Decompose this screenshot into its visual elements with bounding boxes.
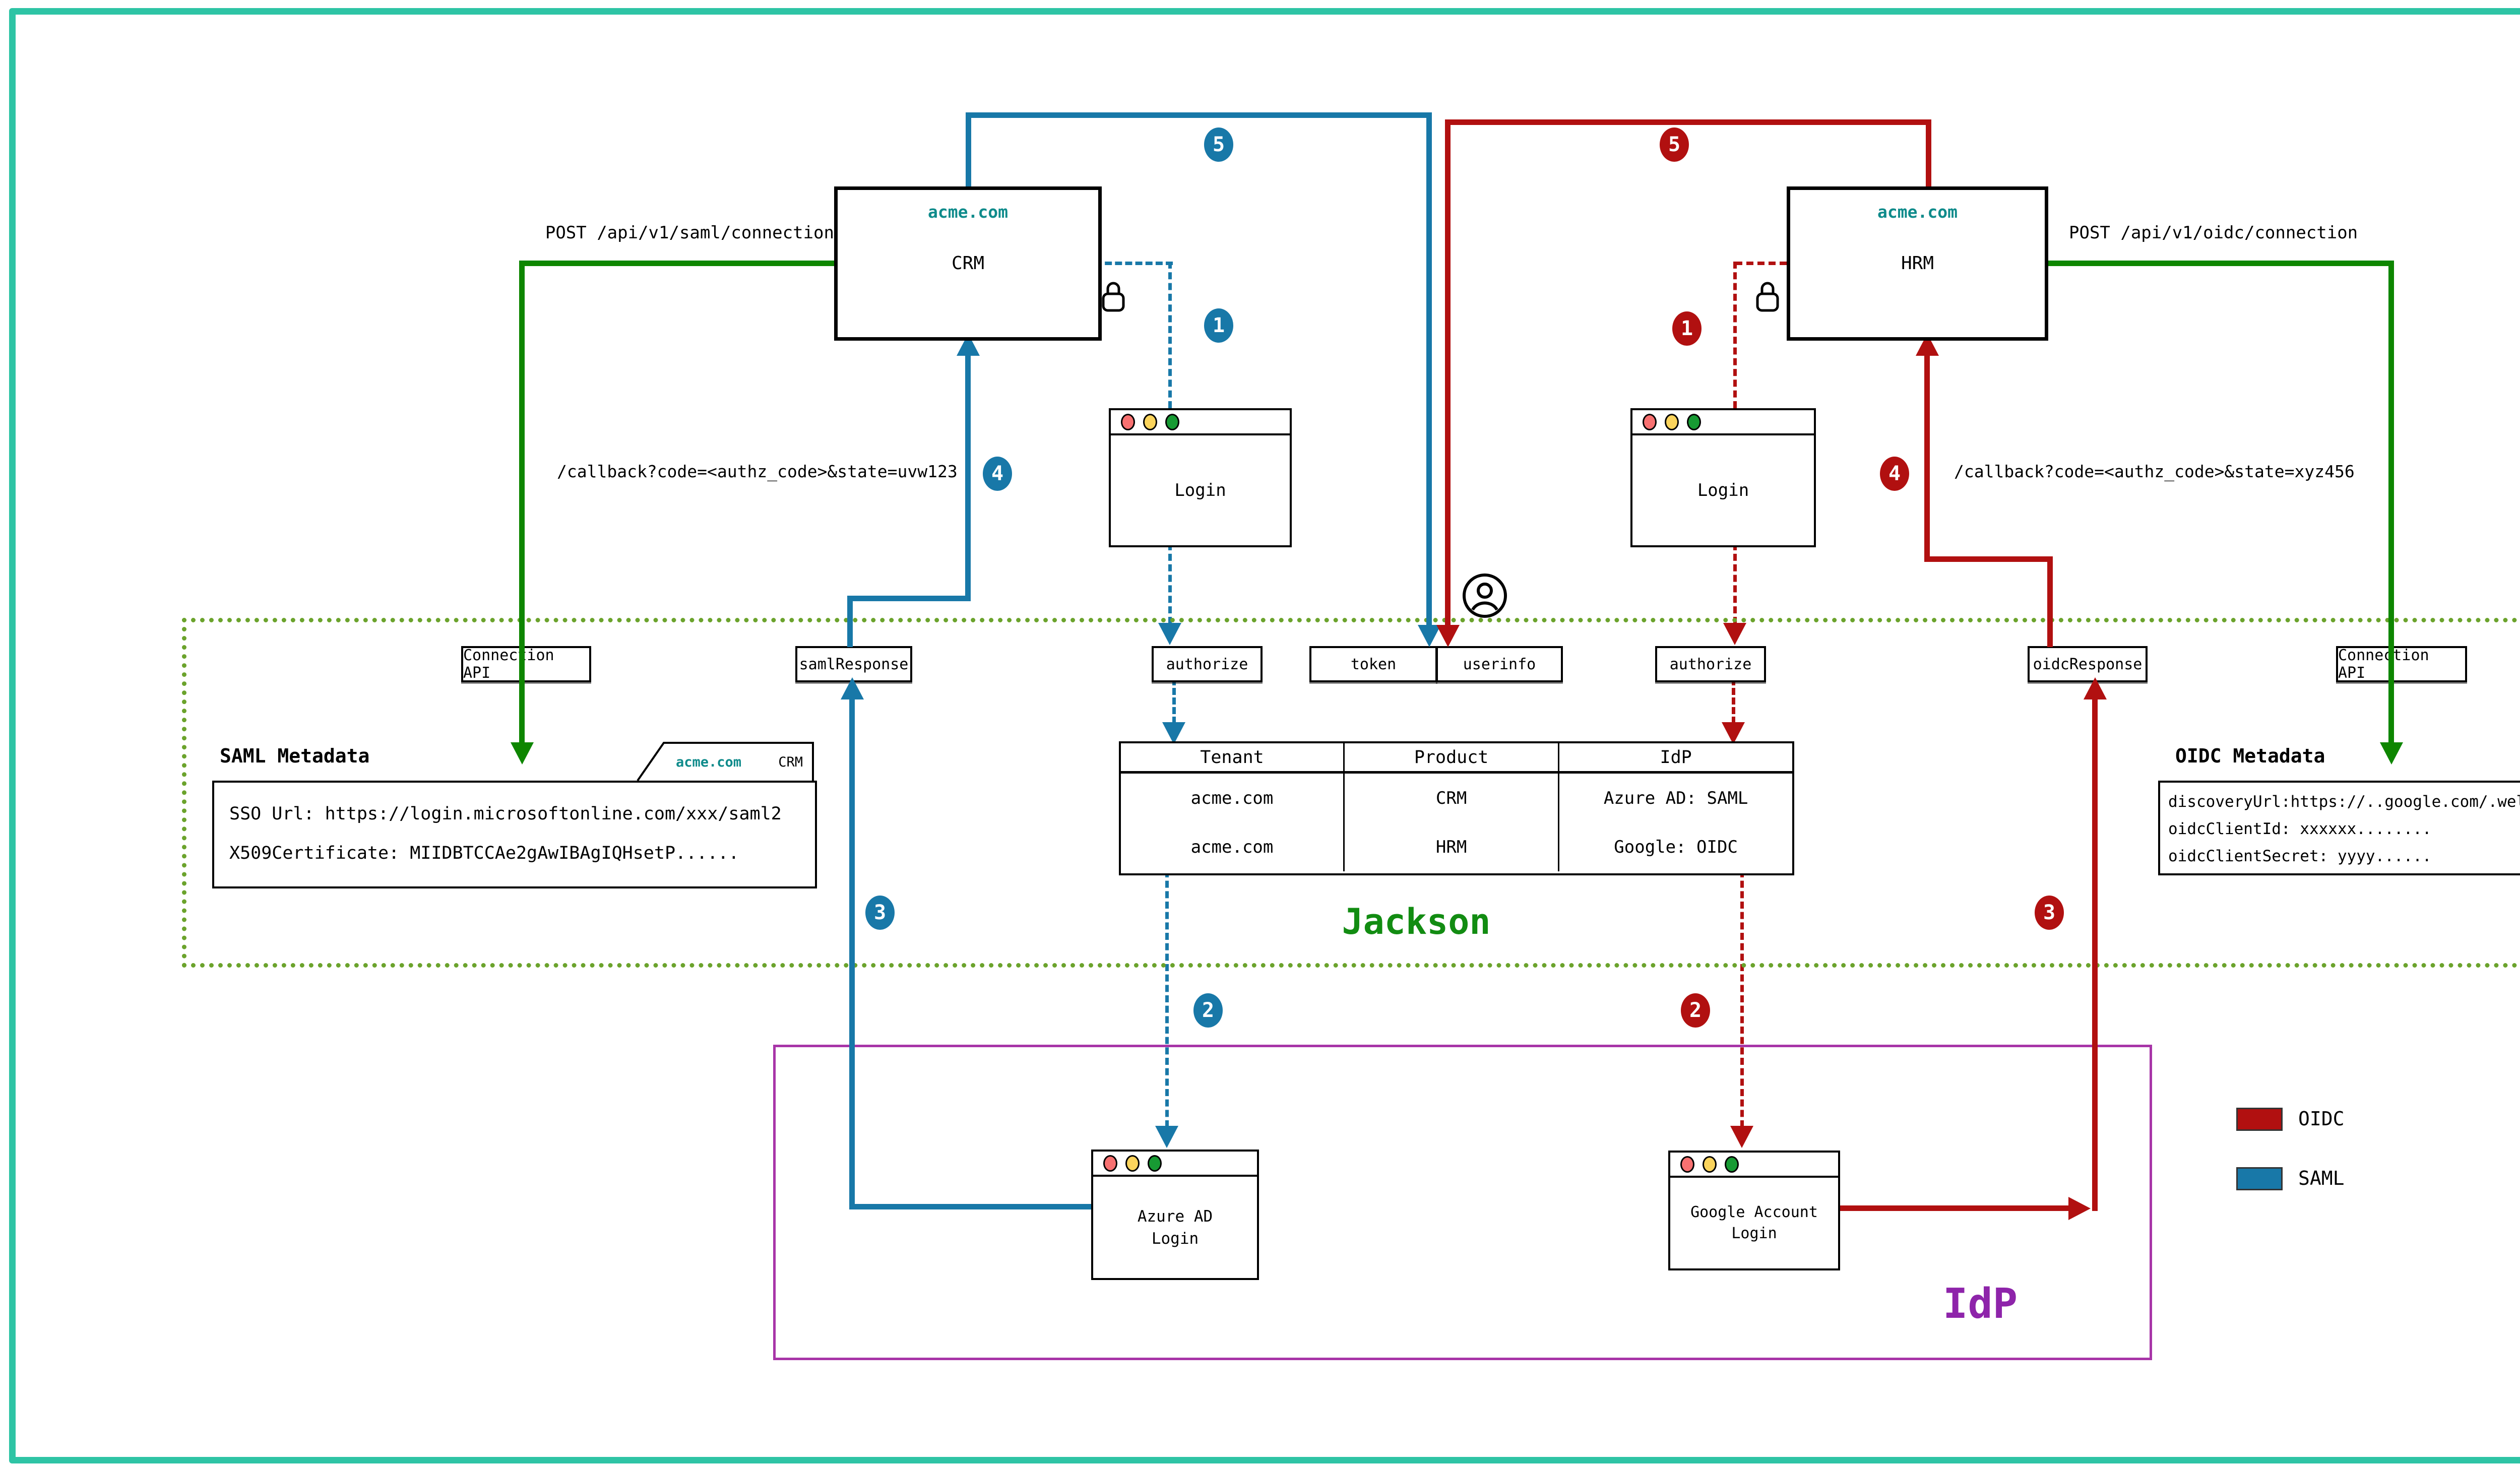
port-label: authorize	[1670, 656, 1752, 673]
table-cell: acme.com	[1121, 774, 1345, 822]
traffic-light-green-icon	[1687, 414, 1701, 430]
traffic-light-red-icon	[1121, 414, 1135, 430]
traffic-light-red-icon	[1643, 414, 1657, 430]
flow-line-red-step4-v	[1924, 356, 1930, 562]
traffic-light-red-icon	[1103, 1155, 1117, 1172]
callback-saml-label: /callback?code=<authz_code>&state=uvw123	[557, 462, 958, 481]
lock-icon	[1100, 280, 1127, 315]
post-saml-connection-label: POST /api/v1/saml/connection	[544, 223, 834, 243]
hrm-domain: acme.com	[1790, 202, 2045, 222]
table-header-tenant: Tenant	[1121, 743, 1345, 774]
oidc-client-secret: oidcClientSecret: yyyy......	[2160, 847, 2520, 865]
window-titlebar	[1111, 410, 1290, 435]
flow-line-blue-step4-h	[847, 596, 971, 601]
step-badge-saml-3: 3	[865, 896, 895, 930]
port-label: authorize	[1166, 656, 1248, 673]
lock-icon	[1754, 280, 1781, 315]
arrow-red-userinfo-down	[1436, 625, 1460, 647]
oidc-metadata-box: discoveryUrl:https://..google.com/.well-…	[2158, 781, 2520, 875]
saml-metadata-tab: acme.com CRM	[611, 741, 815, 782]
azure-login-label-line2: Login	[1152, 1228, 1199, 1250]
jackson-title: Jackson	[1290, 901, 1542, 942]
traffic-light-yellow-icon	[1125, 1155, 1140, 1172]
traffic-light-green-icon	[1165, 414, 1179, 430]
arrow-red-oidcresponse-up	[2084, 677, 2107, 699]
traffic-light-green-icon	[1148, 1155, 1162, 1172]
login-window-label: Login	[1697, 479, 1749, 502]
flow-line-red-step5-h	[1445, 119, 1931, 125]
crm-name: CRM	[838, 253, 1098, 274]
table-cell: CRM	[1345, 774, 1559, 822]
login-window-label: Login	[1174, 479, 1226, 502]
oidc-discovery-url: discoveryUrl:https://..google.com/.well-…	[2160, 793, 2520, 811]
flow-line-blue-step3-v	[849, 699, 855, 1209]
window-titlebar	[1632, 410, 1814, 435]
step-badge-oidc-4: 4	[1880, 457, 1909, 491]
callback-oidc-label: /callback?code=<authz_code>&state=xyz456	[1954, 462, 2355, 481]
step-badge-oidc-2: 2	[1681, 993, 1710, 1028]
traffic-light-yellow-icon	[1665, 414, 1679, 430]
table-cell: Google: OIDC	[1559, 822, 1792, 871]
port-userinfo: userinfo	[1436, 646, 1563, 682]
dashed-red-hrm-out-h	[1735, 262, 1787, 265]
table-header-idp: IdP	[1559, 743, 1792, 774]
login-window-left: Login	[1109, 408, 1292, 547]
saml-x509-certificate: X509Certificate: MIIDBTCCAe2gAwIBAgIQHse…	[214, 843, 815, 863]
port-authorize-right: authorize	[1655, 646, 1766, 682]
saml-tab-domain: acme.com	[676, 754, 741, 770]
window-titlebar	[1093, 1152, 1257, 1177]
dashed-red-to-login-v	[1733, 262, 1737, 408]
step-badge-oidc-5: 5	[1660, 127, 1689, 162]
flow-line-blue-step5-v1	[966, 112, 971, 188]
flow-line-blue-step4-v2	[847, 596, 853, 647]
flow-line-blue-step5-v2	[1426, 112, 1432, 627]
flow-line-red-step4-v2	[2047, 556, 2053, 647]
port-label: samlResponse	[799, 656, 909, 673]
port-connection-api-left: Connection API	[461, 646, 591, 682]
flow-line-red-step5-v1	[1926, 119, 1931, 188]
saml-sso-url: SSO Url: https://login.microsoftonline.c…	[214, 804, 815, 824]
dashed-blue-crm-out-h	[1095, 262, 1173, 265]
flow-line-green-right-h	[2041, 261, 2394, 266]
oidc-metadata-title: OIDC Metadata	[2175, 745, 2325, 767]
port-label: token	[1351, 656, 1396, 673]
flow-line-blue-step4-v	[965, 356, 971, 601]
window-titlebar	[1670, 1153, 1838, 1178]
port-authorize-left: authorize	[1152, 646, 1263, 682]
oidc-client-id: oidcClientId: xxxxxx........	[2160, 820, 2520, 838]
legend-swatch-oidc	[2236, 1108, 2283, 1131]
post-oidc-connection-label: POST /api/v1/oidc/connection	[2069, 223, 2358, 243]
legend-label-saml: SAML	[2298, 1167, 2345, 1189]
table-header-product: Product	[1345, 743, 1559, 774]
step-badge-oidc-3: 3	[2035, 896, 2064, 930]
flow-line-red-step5-v2	[1445, 119, 1451, 627]
flow-line-blue-step5-h	[966, 112, 1432, 118]
login-window-right: Login	[1630, 408, 1816, 547]
dashed-blue-login-to-authorize	[1168, 543, 1172, 624]
dashed-red-login-to-authorize	[1733, 543, 1737, 624]
azure-login-label-line1: Azure AD	[1138, 1205, 1213, 1228]
step-badge-saml-2: 2	[1193, 993, 1223, 1028]
arrow-blue-samlresponse-up	[841, 677, 864, 699]
tenant-table: Tenant Product IdP acme.com CRM Azure AD…	[1119, 741, 1794, 875]
app-box-hrm: acme.com HRM	[1787, 186, 2048, 341]
flow-line-red-step3-v	[2092, 699, 2098, 1211]
arrow-green-left-down	[511, 742, 534, 764]
table-cell: acme.com	[1121, 822, 1345, 871]
azure-ad-login-window: Azure AD Login	[1091, 1150, 1259, 1280]
crm-domain: acme.com	[838, 202, 1098, 222]
saml-metadata-title: SAML Metadata	[220, 745, 369, 767]
traffic-light-green-icon	[1725, 1156, 1739, 1173]
port-token: token	[1309, 646, 1437, 682]
step-badge-saml-1: 1	[1204, 308, 1233, 343]
google-account-login-window: Google Account Login	[1668, 1151, 1840, 1270]
port-label: Connection API	[2338, 647, 2465, 682]
flow-line-green-right-v	[2388, 261, 2394, 743]
step-badge-saml-5: 5	[1204, 127, 1233, 162]
table-cell: HRM	[1345, 822, 1559, 871]
traffic-light-red-icon	[1680, 1156, 1694, 1173]
step-badge-oidc-1: 1	[1672, 311, 1702, 346]
flow-line-green-left-v	[519, 261, 525, 743]
port-label: userinfo	[1463, 656, 1536, 673]
dashed-blue-to-login-v	[1168, 262, 1172, 408]
traffic-light-yellow-icon	[1703, 1156, 1717, 1173]
idp-title: IdP	[1943, 1280, 2018, 1328]
app-box-crm: acme.com CRM	[834, 186, 1102, 341]
saml-metadata-box: SSO Url: https://login.microsoftonline.c…	[212, 781, 817, 888]
hrm-name: HRM	[1790, 253, 2045, 274]
user-icon	[1461, 571, 1509, 622]
table-cell: Azure AD: SAML	[1559, 774, 1792, 822]
arrow-green-right-down	[2380, 742, 2403, 764]
port-connection-api-right: Connection API	[2336, 646, 2467, 682]
port-label: oidcResponse	[2033, 656, 2143, 673]
step-badge-saml-4: 4	[983, 457, 1012, 491]
google-login-label-line2: Login	[1731, 1223, 1777, 1244]
google-login-label-line1: Google Account	[1690, 1202, 1818, 1223]
legend-label-oidc: OIDC	[2298, 1108, 2345, 1130]
flow-line-green-left-h	[519, 261, 834, 266]
port-label: Connection API	[463, 647, 589, 682]
saml-tab-product: CRM	[778, 754, 803, 770]
legend-swatch-saml	[2236, 1167, 2283, 1190]
sso-flow-diagram: Jackson Connection API samlResponse auth…	[0, 0, 2520, 1467]
traffic-light-yellow-icon	[1143, 414, 1157, 430]
flow-line-red-step4-h	[1924, 556, 2053, 562]
